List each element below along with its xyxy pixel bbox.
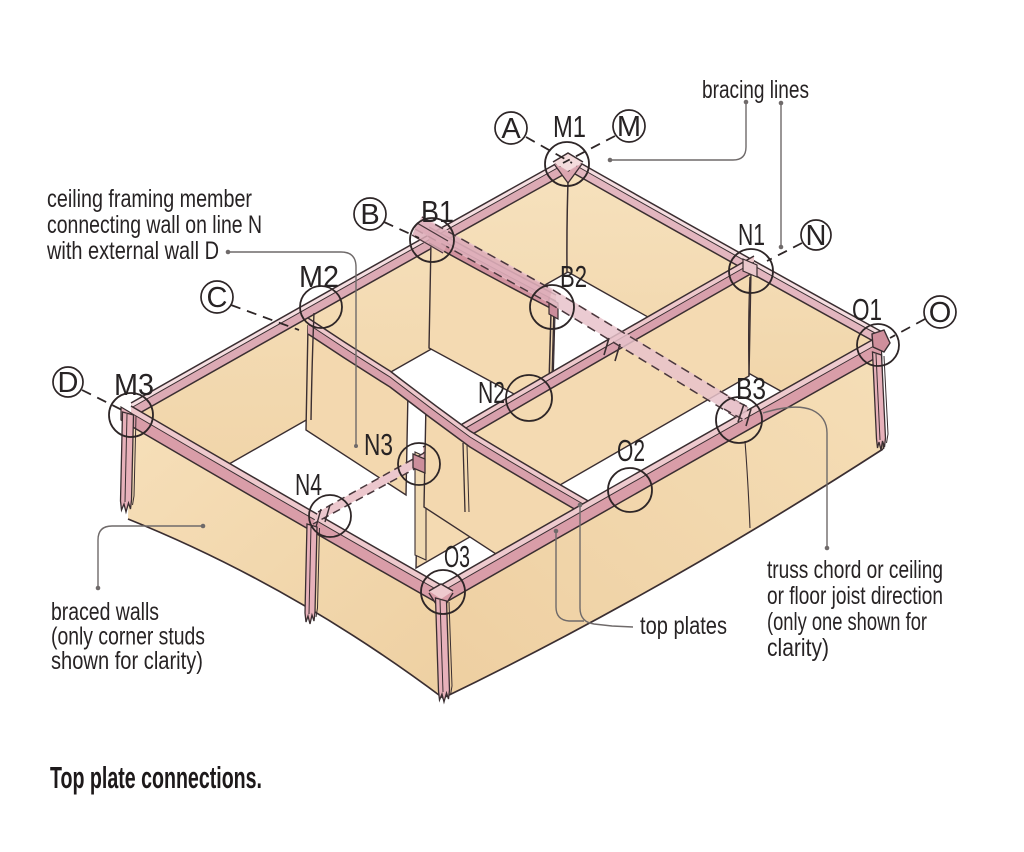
svg-text:N4: N4: [295, 467, 322, 502]
svg-text:shown for clarity): shown for clarity): [51, 647, 203, 675]
svg-text:M1: M1: [553, 109, 586, 144]
svg-text:top plates: top plates: [640, 612, 727, 640]
svg-text:M3: M3: [114, 367, 154, 402]
svg-text:O2: O2: [617, 433, 645, 468]
svg-text:truss chord or ceiling: truss chord or ceiling: [767, 556, 943, 584]
svg-text:O1: O1: [852, 292, 882, 327]
svg-text:N: N: [806, 220, 827, 252]
svg-text:clarity): clarity): [767, 634, 829, 662]
svg-text:B2: B2: [560, 259, 587, 294]
svg-text:B3: B3: [736, 371, 766, 406]
svg-text:with external wall D: with external wall D: [46, 237, 219, 265]
svg-text:bracing lines: bracing lines: [702, 76, 809, 104]
svg-text:O: O: [929, 297, 952, 329]
svg-text:M2: M2: [299, 259, 339, 294]
svg-text:B1: B1: [421, 194, 454, 229]
svg-text:N3: N3: [364, 427, 393, 462]
svg-text:connecting wall on line N: connecting wall on line N: [47, 211, 262, 239]
svg-text:O3: O3: [444, 539, 470, 574]
svg-text:(only one shown for: (only one shown for: [767, 608, 927, 636]
svg-text:or floor joist direction: or floor joist direction: [767, 582, 943, 610]
svg-text:A: A: [501, 113, 521, 145]
svg-text:M: M: [617, 111, 641, 143]
svg-text:B: B: [360, 199, 379, 231]
svg-text:ceiling framing member: ceiling framing member: [47, 185, 252, 213]
svg-text:Top plate connections.: Top plate connections.: [50, 760, 262, 795]
svg-text:N1: N1: [738, 217, 765, 252]
svg-text:N2: N2: [478, 375, 505, 410]
svg-text:D: D: [58, 367, 79, 399]
svg-text:C: C: [207, 282, 228, 314]
